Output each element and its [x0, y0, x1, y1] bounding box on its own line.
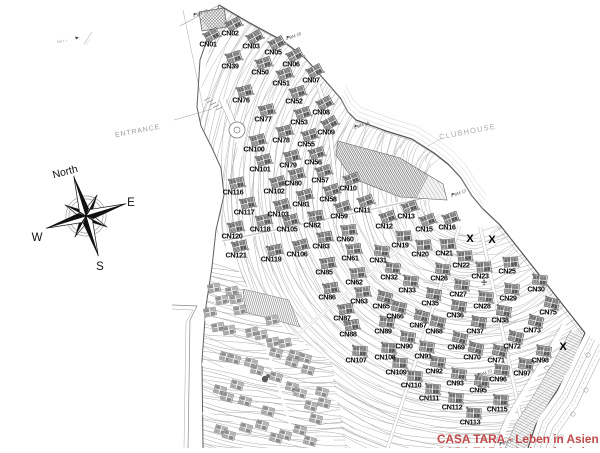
svg-text:CN103: CN103: [268, 210, 289, 219]
svg-text:CN102: CN102: [264, 187, 285, 196]
svg-text:CN27: CN27: [449, 290, 467, 299]
svg-text:CN35: CN35: [421, 299, 439, 308]
svg-text:CN79: CN79: [279, 161, 297, 170]
svg-text:CN39: CN39: [221, 62, 239, 71]
svg-text:CN118: CN118: [250, 225, 271, 234]
svg-text:CN58: CN58: [319, 195, 337, 204]
svg-text:CN60: CN60: [336, 235, 354, 244]
svg-text:CN80: CN80: [284, 179, 302, 188]
svg-text:CN83: CN83: [312, 242, 330, 251]
svg-text:CN01: CN01: [199, 40, 217, 49]
svg-text:CN19: CN19: [391, 241, 409, 250]
svg-text:CN02: CN02: [221, 29, 239, 38]
svg-text:CN26: CN26: [430, 274, 448, 283]
svg-text:CN65: CN65: [372, 302, 390, 311]
svg-text:CN107: CN107: [346, 356, 367, 365]
svg-text:CN110: CN110: [401, 381, 422, 390]
svg-text:CN121: CN121: [226, 251, 247, 260]
svg-text:CN89: CN89: [374, 327, 392, 336]
svg-text:CN100: CN100: [244, 145, 265, 154]
svg-text:CN113: CN113: [460, 418, 481, 427]
svg-text:CN05: CN05: [264, 48, 282, 57]
svg-text:CN87: CN87: [333, 314, 351, 323]
svg-text:CN15: CN15: [415, 225, 433, 234]
svg-text:CN67: CN67: [409, 321, 427, 330]
svg-text:CN72: CN72: [503, 342, 521, 351]
svg-text:➗: ➗: [481, 279, 487, 286]
svg-text:CN119: CN119: [261, 255, 282, 264]
svg-text:CN13: CN13: [397, 212, 415, 221]
svg-text:CN28: CN28: [473, 302, 491, 311]
svg-text:CN97: CN97: [513, 369, 531, 378]
svg-text:CN29: CN29: [499, 294, 517, 303]
svg-text:CN85: CN85: [315, 268, 333, 277]
svg-text:CN61: CN61: [341, 254, 359, 263]
svg-text:CN82: CN82: [303, 221, 321, 230]
svg-text:CN75: CN75: [539, 308, 557, 317]
svg-text:CN111: CN111: [419, 394, 439, 403]
svg-text:X: X: [466, 233, 474, 245]
svg-text:CN120: CN120: [222, 232, 243, 241]
svg-text:CN91: CN91: [414, 352, 432, 361]
svg-text:CN62: CN62: [345, 278, 363, 287]
svg-text:CN33: CN33: [398, 286, 416, 295]
svg-text:CN09: CN09: [317, 128, 335, 137]
svg-text:CN68: CN68: [425, 327, 443, 336]
svg-text:CN93: CN93: [446, 379, 464, 388]
svg-text:CN03: CN03: [242, 42, 260, 51]
svg-text:CN117: CN117: [234, 208, 255, 217]
svg-text:CN63: CN63: [350, 297, 368, 306]
svg-text:CN31: CN31: [369, 256, 387, 265]
svg-text:CN22: CN22: [452, 261, 470, 270]
svg-text:CN69: CN69: [447, 343, 465, 352]
svg-text:CN38: CN38: [491, 316, 509, 325]
svg-text:CN70: CN70: [463, 353, 481, 362]
svg-text:CN08: CN08: [312, 108, 330, 117]
svg-text:CN10: CN10: [339, 184, 357, 193]
svg-text:CN105: CN105: [277, 225, 298, 234]
svg-text:CN11: CN11: [354, 206, 371, 215]
svg-text:CN16: CN16: [438, 223, 456, 232]
svg-text:CN71: CN71: [487, 356, 505, 365]
svg-text:CN77: CN77: [254, 115, 272, 124]
svg-text:CN115: CN115: [487, 405, 508, 414]
svg-text:CN07: CN07: [302, 76, 320, 85]
svg-text:S: S: [96, 261, 104, 273]
svg-text:CN59: CN59: [330, 212, 348, 221]
svg-text:➗: ➗: [477, 383, 483, 390]
svg-text:CN21: CN21: [435, 249, 453, 258]
svg-text:CN32: CN32: [380, 273, 398, 282]
svg-text:CN37: CN37: [466, 327, 484, 336]
svg-text:CN25: CN25: [498, 267, 516, 276]
svg-text:X: X: [488, 234, 496, 246]
svg-text:CN20: CN20: [411, 250, 429, 259]
svg-text:CN81: CN81: [292, 200, 310, 209]
svg-text:CN106: CN106: [287, 250, 308, 259]
svg-text:CN109: CN109: [386, 368, 407, 377]
svg-text:W: W: [32, 232, 43, 244]
svg-text:CN86: CN86: [318, 293, 336, 302]
svg-text:CN76: CN76: [232, 96, 250, 105]
svg-text:CN112: CN112: [442, 403, 463, 412]
svg-text:CN78: CN78: [272, 136, 290, 145]
svg-text:CN52: CN52: [285, 97, 303, 106]
svg-text:CN55: CN55: [297, 140, 315, 149]
svg-text:CN06: CN06: [282, 60, 300, 69]
svg-text:CN30: CN30: [527, 285, 545, 294]
svg-text:CN73: CN73: [523, 326, 541, 335]
svg-text:CN108: CN108: [375, 353, 396, 362]
svg-text:CN50: CN50: [251, 68, 269, 77]
svg-text:CN51: CN51: [272, 79, 290, 88]
svg-text:E: E: [127, 197, 135, 209]
svg-text:CN98: CN98: [531, 356, 549, 365]
svg-text:CN96: CN96: [489, 375, 507, 384]
svg-text:CN36: CN36: [446, 311, 464, 320]
svg-text:CN116: CN116: [223, 188, 244, 197]
svg-text:CN66: CN66: [386, 312, 404, 321]
svg-text:CN56: CN56: [304, 158, 322, 167]
svg-text:CN88: CN88: [339, 330, 357, 339]
svg-text:CN92: CN92: [425, 367, 443, 376]
svg-text:CN90: CN90: [395, 342, 413, 351]
svg-text:CN53: CN53: [290, 118, 308, 127]
svg-text:X: X: [559, 341, 567, 353]
svg-text:CN12: CN12: [375, 222, 393, 231]
svg-text:CN57: CN57: [311, 176, 329, 185]
svg-text:CN101: CN101: [250, 165, 271, 174]
